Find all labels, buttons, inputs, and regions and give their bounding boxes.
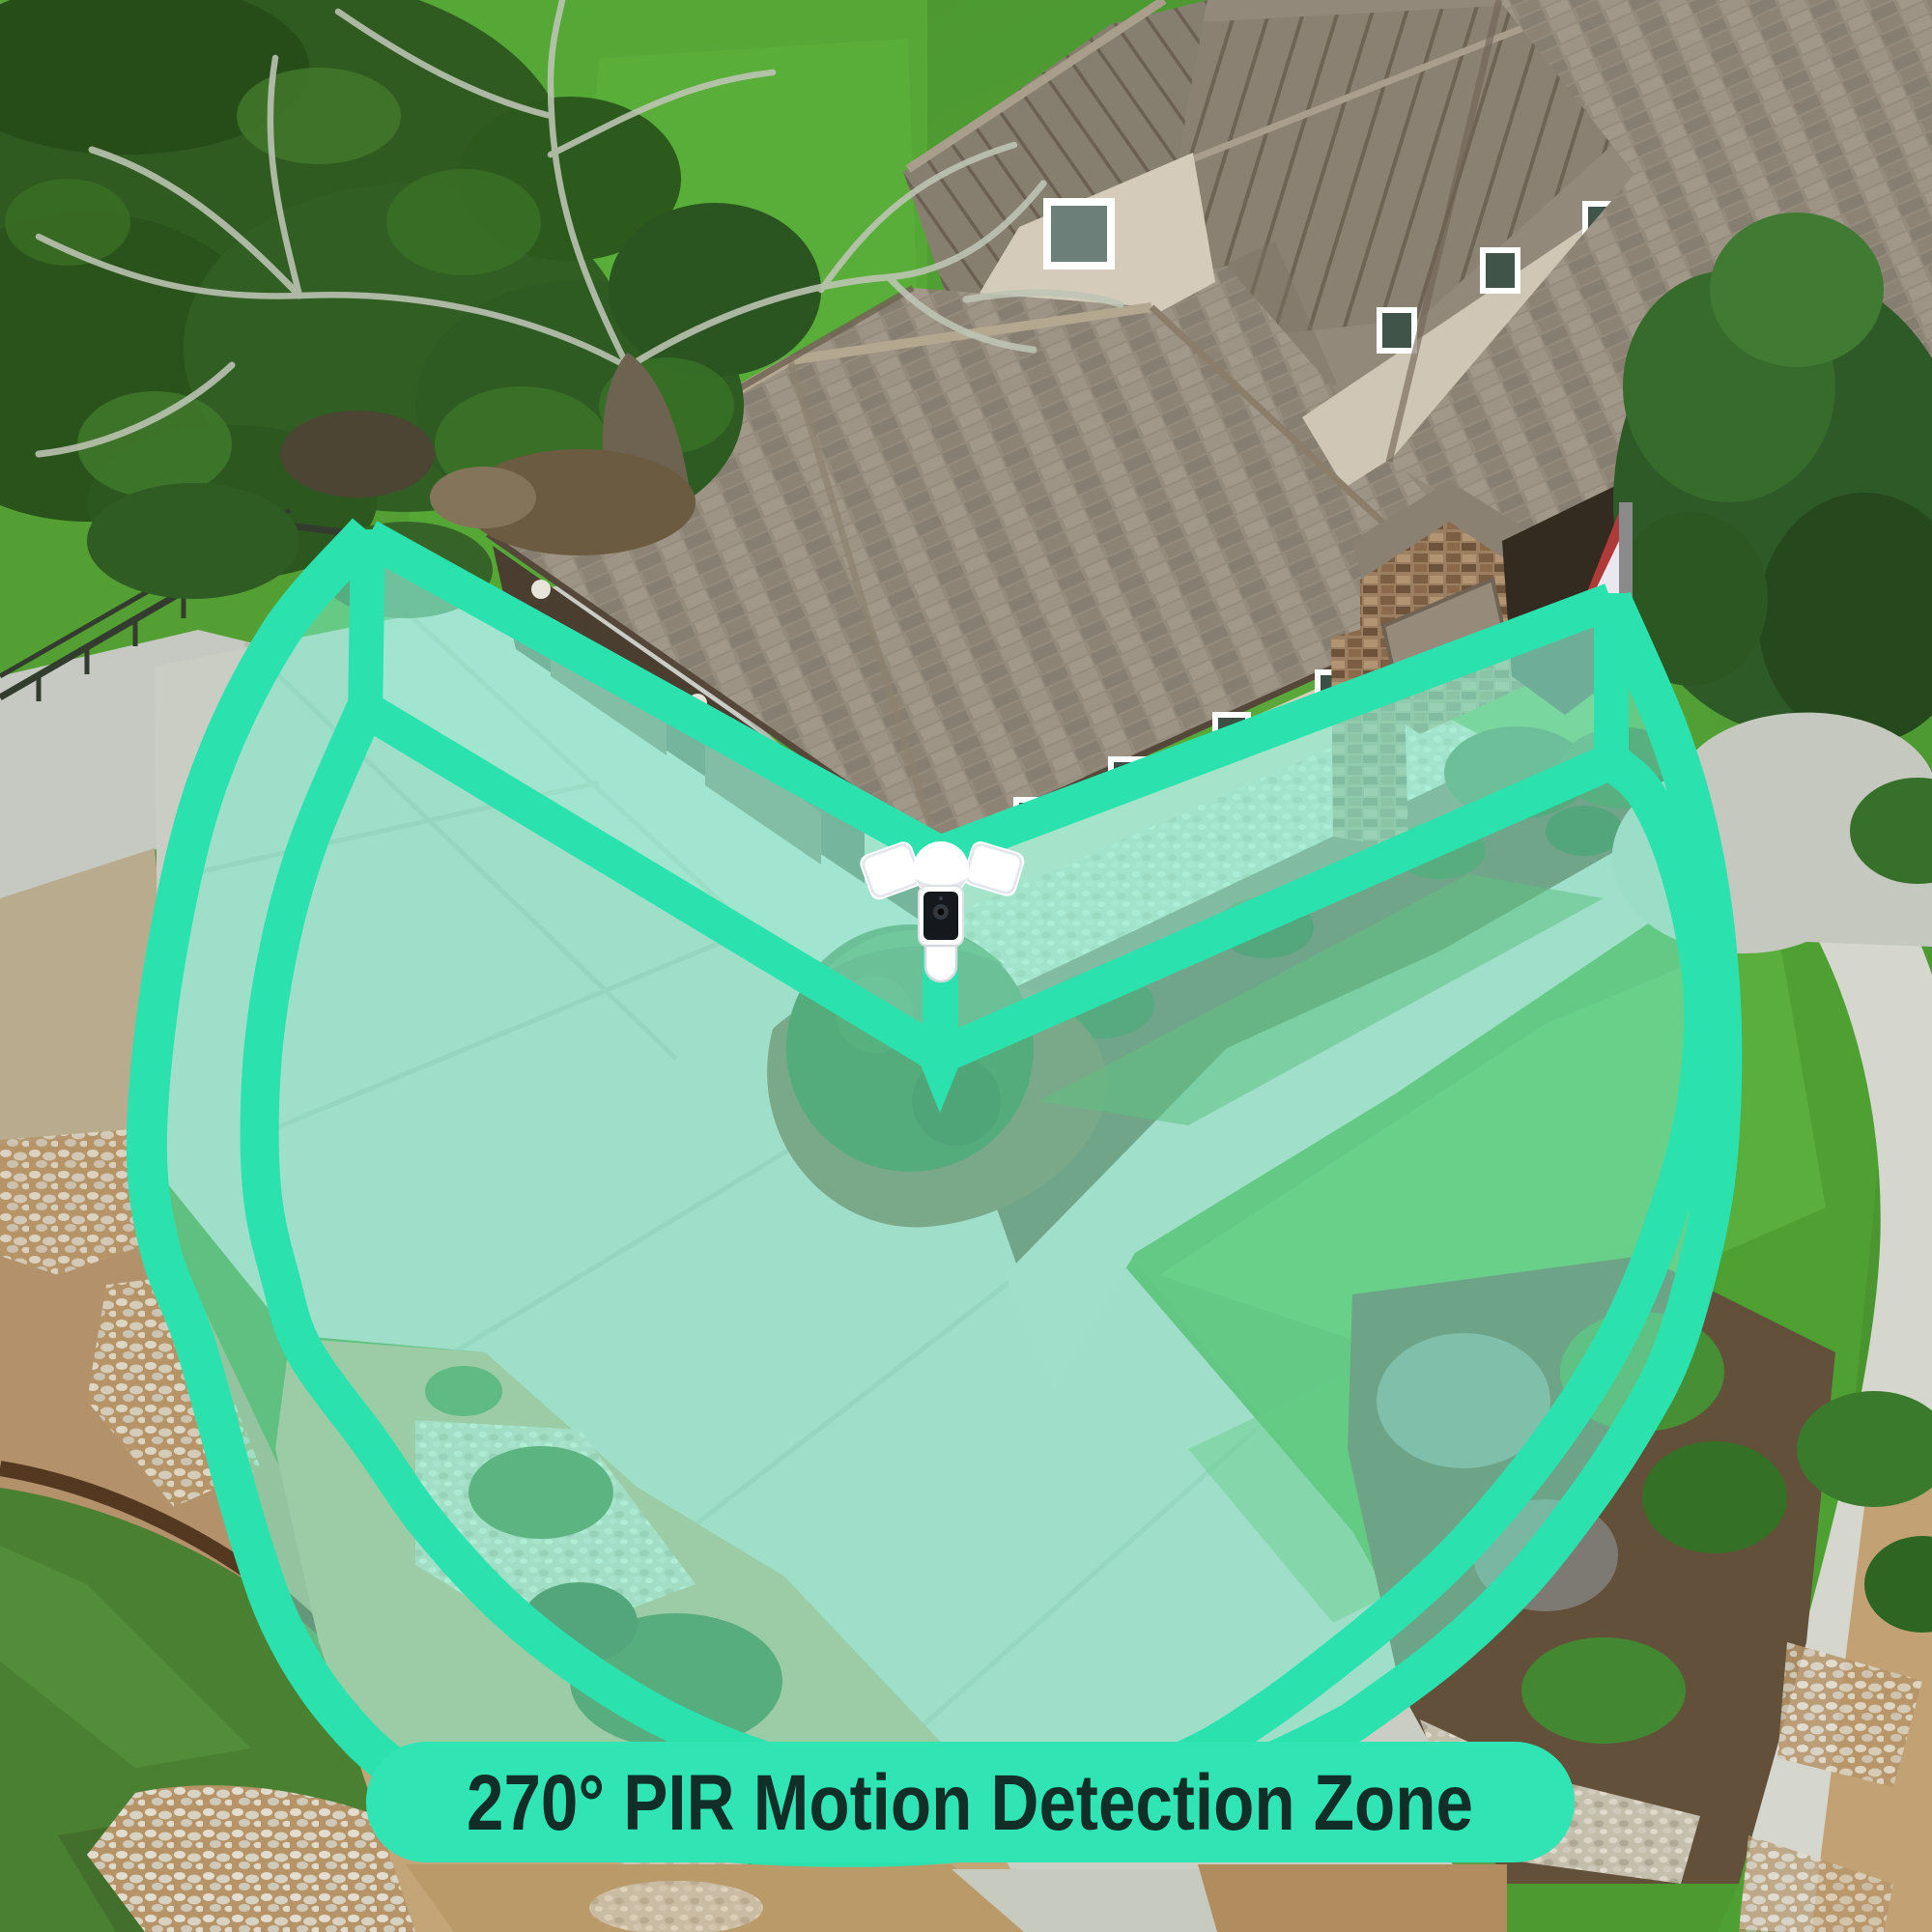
svg-text:270° PIR Motion Detection Zone: 270° PIR Motion Detection Zone xyxy=(467,1759,1473,1847)
